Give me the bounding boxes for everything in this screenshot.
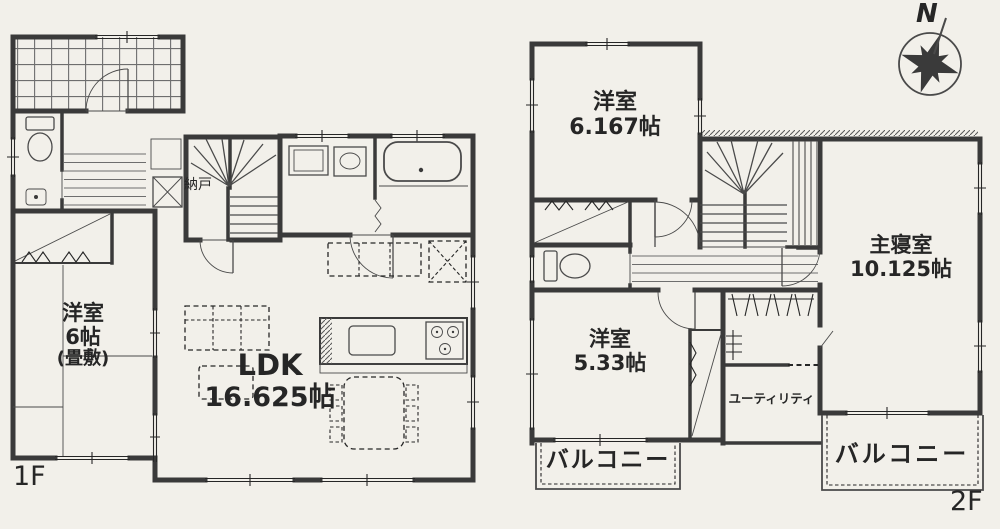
- hallway-floor-2f: [632, 249, 818, 287]
- shoe-cabinet: [151, 139, 181, 169]
- cupboard-dashed: [328, 243, 421, 276]
- hall-closet: [153, 177, 182, 207]
- staircase-2f: [700, 140, 787, 247]
- room-label-utility: ユーティリティ: [723, 392, 820, 406]
- refrigerator-dashed: [429, 241, 466, 282]
- entrance-tile-floor: [13, 37, 183, 111]
- room-label-bedroom-a: 洋室 6.167帖: [532, 90, 698, 141]
- ldk-name: LDK: [170, 349, 370, 382]
- linen-closet: [789, 141, 817, 245]
- washroom-door: [350, 235, 393, 278]
- washing-machine-icon: [289, 146, 328, 175]
- tatami-size: 6帖: [18, 325, 148, 349]
- bedroom-a-name: 洋室: [532, 90, 698, 115]
- room-label-master: 主寝室 10.125帖: [822, 233, 980, 281]
- washbasin-icon: [334, 147, 366, 176]
- tatami-closet: [13, 214, 112, 263]
- compass-rose: [892, 18, 968, 102]
- ldk-size: 16.625帖: [170, 382, 370, 413]
- floor1-label: 1F: [13, 461, 46, 492]
- walkin-closet-hangers: [726, 294, 814, 360]
- compass-north-label: N: [916, 0, 938, 30]
- bedroom-a-size: 6.167帖: [532, 115, 698, 140]
- bedroom-top-wall-hatch: [702, 130, 978, 136]
- stairs-hall-door: [655, 202, 700, 247]
- storage-door: [200, 240, 233, 273]
- toilet-1f-icon: [26, 117, 54, 205]
- entrance-hall-floor: [64, 153, 146, 207]
- bedroom-b-size: 5.33帖: [532, 351, 688, 375]
- room-label-tatami: 洋室 6帖 (畳敷): [18, 301, 148, 370]
- floor1-plan: [7, 31, 479, 486]
- closet-2f-b: [690, 330, 723, 436]
- bathtub-icon: [375, 142, 468, 232]
- room-label-ldk: LDK 16.625帖: [170, 349, 370, 413]
- room-b-door: [658, 292, 695, 329]
- master-size: 10.125帖: [822, 257, 980, 281]
- toilet-2f-icon: [544, 251, 590, 281]
- stove-icon: [426, 322, 463, 359]
- master-name: 主寝室: [822, 233, 980, 257]
- room-label-nando: 納戸: [184, 177, 212, 193]
- room-label-balcony-left: バルコニー: [537, 447, 679, 473]
- wic-door-leaf: [820, 331, 833, 348]
- room-label-bedroom-b: 洋室 5.33帖: [532, 327, 688, 375]
- floorplan-page: 納戸 洋室 6帖 (畳敷) LDK 16.625帖 1F 洋室 6.167帖 主…: [0, 0, 1000, 529]
- tatami-note: (畳敷): [18, 349, 148, 370]
- bedroom-b-name: 洋室: [532, 327, 688, 351]
- room-label-balcony-right: バルコニー: [824, 441, 980, 469]
- tatami-name: 洋室: [18, 301, 148, 325]
- closet-2f-a: [534, 201, 628, 243]
- floor2-label: 2F: [950, 486, 983, 517]
